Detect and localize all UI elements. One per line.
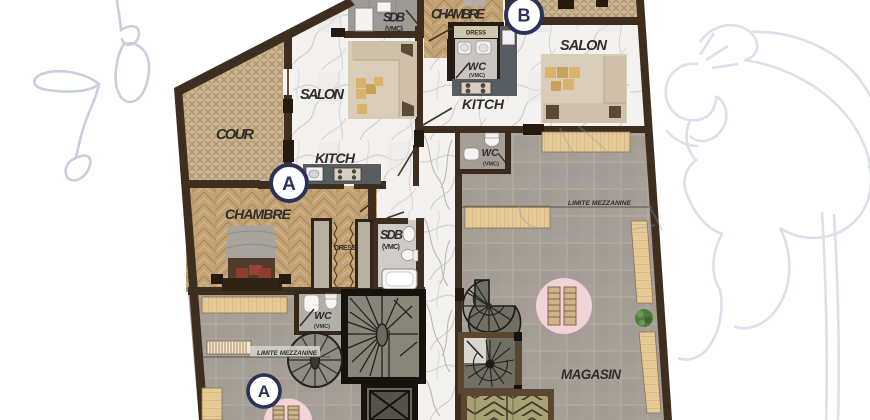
svg-text:DRESS: DRESS: [334, 245, 356, 252]
svg-text:(VMC): (VMC): [314, 324, 330, 330]
svg-text:WC: WC: [468, 61, 487, 73]
svg-text:SDB: SDB: [380, 228, 403, 242]
svg-text:SALON: SALON: [560, 38, 608, 54]
svg-text:A: A: [258, 382, 270, 401]
svg-text:CHAMBRE: CHAMBRE: [431, 7, 486, 22]
svg-text:WC: WC: [314, 310, 332, 322]
svg-text:(VMC): (VMC): [469, 73, 485, 79]
svg-text:(VMC): (VMC): [483, 162, 499, 168]
svg-text:KITCH: KITCH: [315, 150, 356, 166]
svg-text:(VMC): (VMC): [382, 244, 400, 251]
svg-text:B: B: [518, 6, 531, 26]
svg-text:LIMITE MEZZANINE: LIMITE MEZZANINE: [257, 350, 318, 357]
svg-text:SALON: SALON: [300, 87, 345, 103]
svg-text:LIMITE MEZZANINE: LIMITE MEZZANINE: [568, 200, 632, 207]
svg-text:KITCH: KITCH: [462, 96, 505, 112]
svg-text:WC: WC: [482, 148, 499, 159]
svg-text:A: A: [282, 174, 296, 195]
svg-text:MAGASIN: MAGASIN: [561, 367, 621, 382]
svg-text:COUR: COUR: [216, 127, 255, 143]
svg-text:DRESS: DRESS: [466, 30, 487, 37]
svg-text:SDB: SDB: [383, 11, 405, 25]
svg-text:(VMC): (VMC): [385, 26, 403, 33]
svg-text:CHAMBRE: CHAMBRE: [225, 206, 292, 222]
